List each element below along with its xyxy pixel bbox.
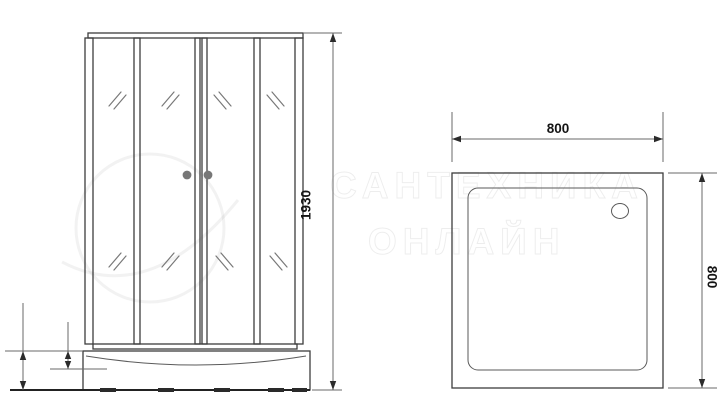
cabin-bottom-rail: [93, 344, 297, 349]
arrowhead-up: [20, 351, 26, 360]
cabin-top-bar: [88, 33, 303, 38]
arrowhead-down: [65, 361, 71, 369]
watermark-text-line2: ОНЛАЙН: [368, 220, 566, 262]
arrowhead-down: [20, 381, 26, 390]
tray-apron-curve: [86, 356, 306, 365]
depth-dimension-label: 800: [705, 266, 720, 289]
tray-height-dimension: [5, 303, 83, 390]
top-width-dimension: 800: [452, 112, 663, 162]
technical-drawing: САНТЕХНИКА ОНЛАЙН: [0, 0, 725, 416]
arrowhead-down: [330, 381, 336, 390]
cabin-frame-posts: [85, 38, 303, 344]
drawing-canvas: САНТЕХНИКА ОНЛАЙН: [0, 0, 725, 416]
door-handle-right: [204, 171, 213, 180]
top-depth-dimension: 800: [668, 173, 720, 388]
watermark: САНТЕХНИКА ОНЛАЙН: [62, 154, 644, 302]
tray-rim-dimension: [50, 322, 107, 369]
arrowhead-left: [452, 136, 461, 142]
floor-line: [10, 388, 310, 392]
front-view: [10, 33, 310, 392]
door-handle-left: [183, 171, 192, 180]
arrowhead-up: [330, 33, 336, 42]
arrowhead-right: [654, 136, 663, 142]
front-height-dimension: 1930: [299, 33, 343, 390]
arrowhead-up: [65, 351, 71, 359]
height-dimension-label: 1930: [299, 190, 314, 220]
arrowhead-up: [699, 173, 705, 182]
tray-inner-basin: [468, 188, 647, 370]
shower-tray-front: [83, 351, 310, 390]
watermark-text-line1: САНТЕХНИКА: [330, 165, 644, 206]
arrowhead-down: [699, 379, 705, 388]
watermark-logo-swoosh: [62, 200, 238, 276]
width-dimension-label: 800: [547, 121, 570, 136]
